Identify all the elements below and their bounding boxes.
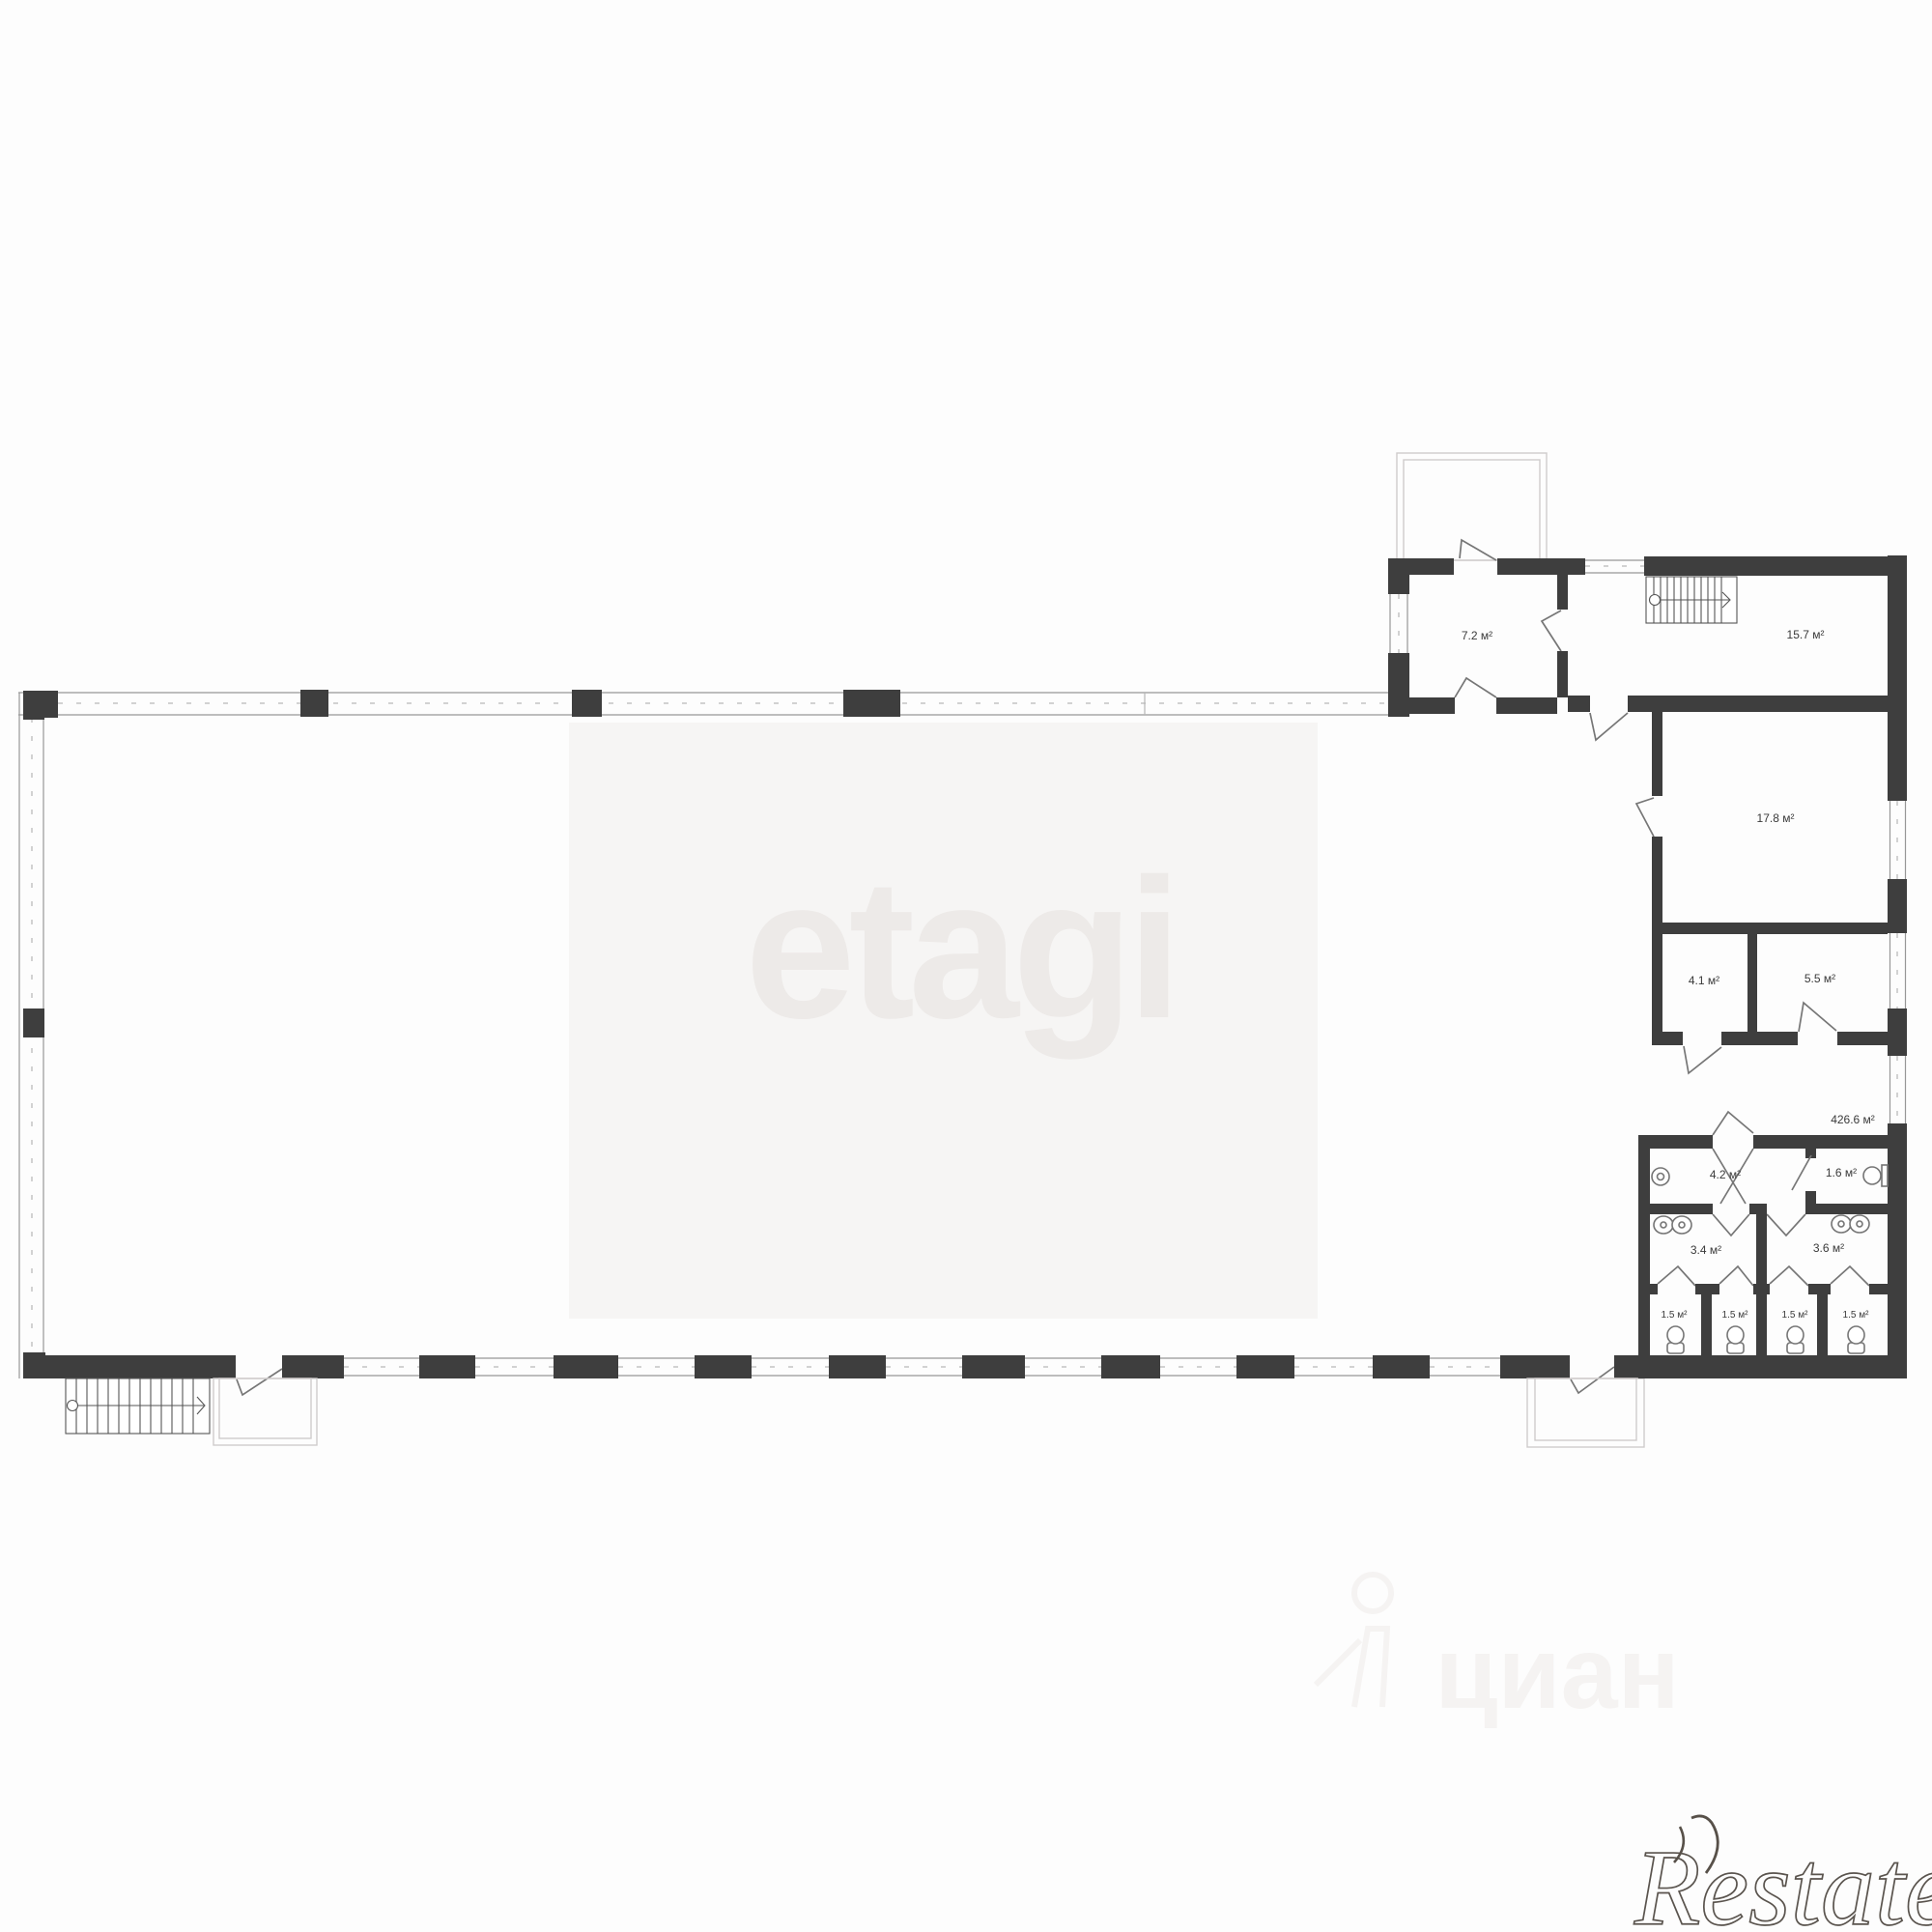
svg-text:1.5 м²: 1.5 м² xyxy=(1722,1310,1749,1321)
svg-text:1.5 м²: 1.5 м² xyxy=(1662,1310,1689,1321)
svg-text:15.7 м²: 15.7 м² xyxy=(1787,628,1825,641)
svg-text:3.6 м²: 3.6 м² xyxy=(1813,1241,1844,1255)
svg-text:17.8 м²: 17.8 м² xyxy=(1757,811,1795,825)
svg-text:426.6 м²: 426.6 м² xyxy=(1831,1113,1875,1126)
svg-text:etagi: etagi xyxy=(745,838,1176,1060)
svg-text:1.5 м²: 1.5 м² xyxy=(1782,1310,1809,1321)
svg-text:4.2 м²: 4.2 м² xyxy=(1710,1168,1741,1181)
svg-text:4.1 м²: 4.1 м² xyxy=(1689,974,1719,987)
svg-text:Restate: Restate xyxy=(1634,1829,1932,1932)
svg-text:1.6 м²: 1.6 м² xyxy=(1826,1166,1857,1179)
svg-text:5.5 м²: 5.5 м² xyxy=(1804,972,1835,985)
svg-text:7.2 м²: 7.2 м² xyxy=(1462,629,1492,642)
svg-text:циан: циан xyxy=(1435,1616,1679,1730)
svg-text:1.5 м²: 1.5 м² xyxy=(1843,1310,1870,1321)
svg-text:3.4 м²: 3.4 м² xyxy=(1690,1243,1721,1257)
